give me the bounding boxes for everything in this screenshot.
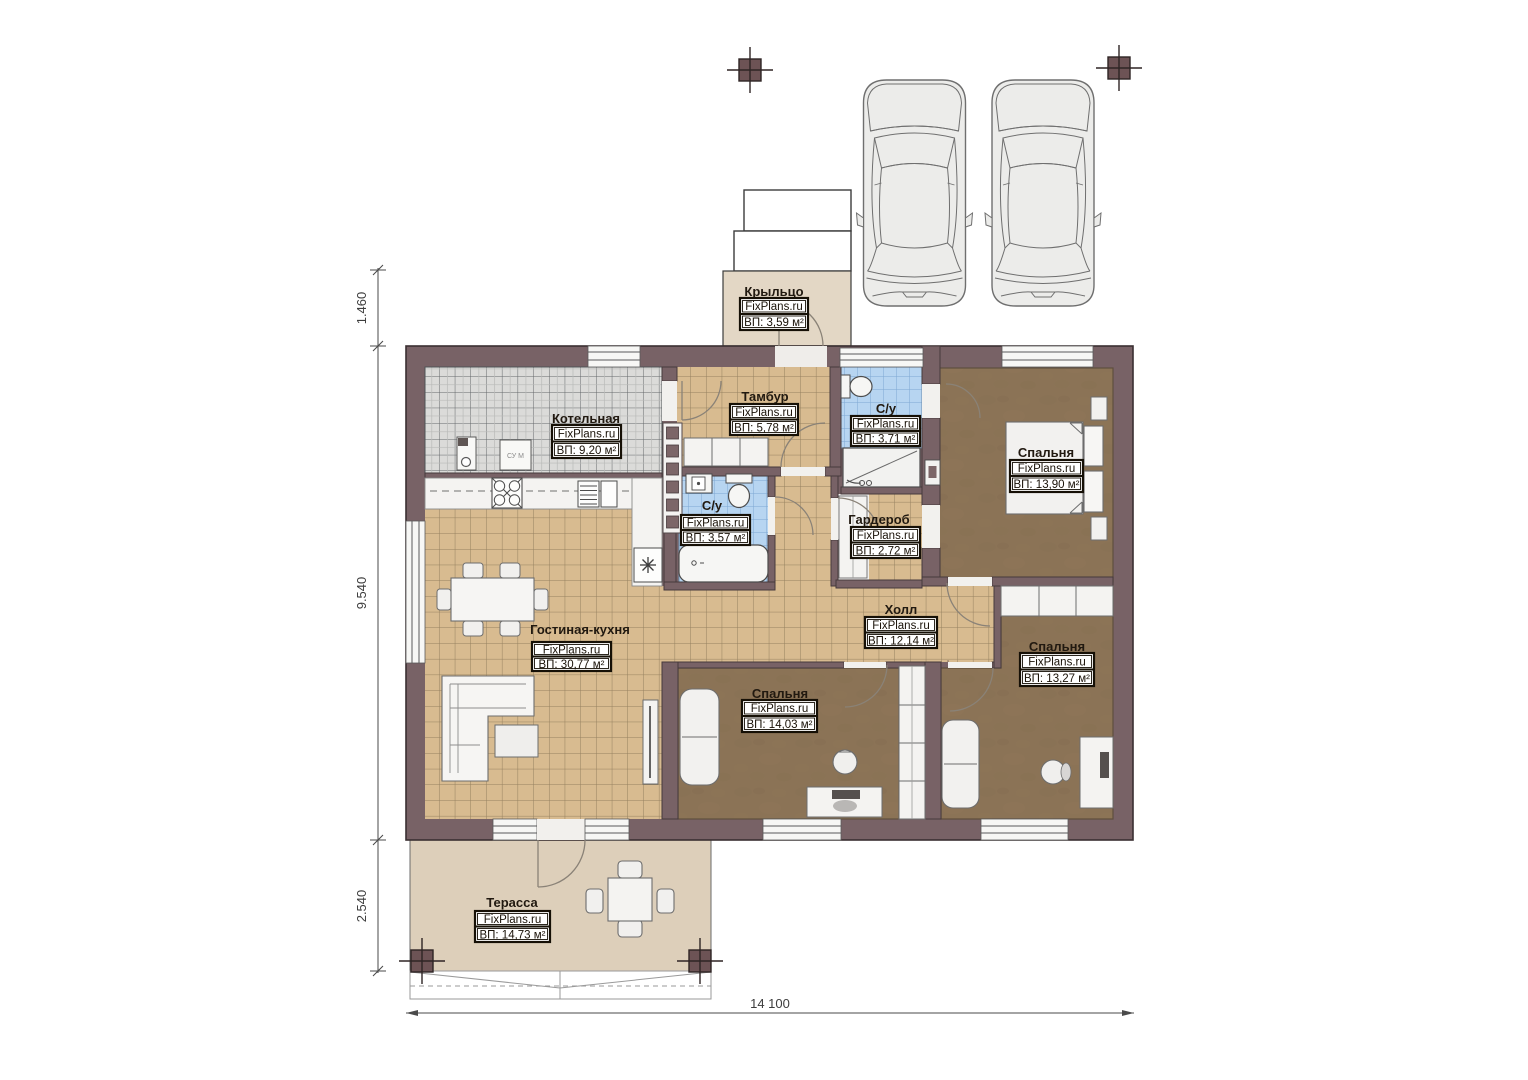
svg-text:14 100: 14 100 [750,996,790,1011]
svg-text:Гостиная-кухня: Гостиная-кухня [530,622,630,637]
svg-text:ВП: 12,14 м²: ВП: 12,14 м² [868,635,934,647]
svg-text:ВП: 2,72 м²: ВП: 2,72 м² [856,545,916,557]
svg-text:ВП: 14,73 м²: ВП: 14,73 м² [479,929,545,941]
svg-text:FixPlans.ru: FixPlans.ru [872,620,930,632]
svg-text:ВП: 3,71 м²: ВП: 3,71 м² [856,434,916,446]
svg-text:Терасса: Терасса [486,895,538,910]
svg-text:1.460: 1.460 [354,292,369,325]
svg-text:FixPlans.ru: FixPlans.ru [745,301,803,313]
svg-text:FixPlans.ru: FixPlans.ru [735,407,793,419]
svg-text:ВП: 13,27 м²: ВП: 13,27 м² [1024,673,1090,685]
svg-text:FixPlans.ru: FixPlans.ru [1018,463,1076,475]
svg-text:FixPlans.ru: FixPlans.ru [687,518,745,530]
svg-text:Холл: Холл [885,602,918,617]
svg-text:Крыльцо: Крыльцо [744,284,803,299]
svg-text:ВП: 3,57 м²: ВП: 3,57 м² [686,533,746,545]
svg-text:Спальня: Спальня [1018,445,1074,460]
svg-text:9.540: 9.540 [354,577,369,610]
svg-text:FixPlans.ru: FixPlans.ru [857,419,915,431]
svg-text:Спальня: Спальня [1029,639,1085,654]
svg-text:FixPlans.ru: FixPlans.ru [484,914,542,926]
svg-text:ВП: 5,78 м²: ВП: 5,78 м² [734,422,794,434]
svg-text:Спальня: Спальня [752,686,808,701]
svg-text:Тамбур: Тамбур [741,389,788,404]
svg-text:FixPlans.ru: FixPlans.ru [857,530,915,542]
svg-text:FixPlans.ru: FixPlans.ru [751,703,809,715]
svg-text:FixPlans.ru: FixPlans.ru [543,644,601,656]
svg-text:2.540: 2.540 [354,890,369,923]
svg-text:ВП: 3,59 м²: ВП: 3,59 м² [744,317,804,329]
svg-text:Котельная: Котельная [552,411,620,426]
svg-text:ВП: 14,03 м²: ВП: 14,03 м² [746,719,812,731]
svg-text:FixPlans.ru: FixPlans.ru [1028,656,1086,668]
svg-text:ВП: 9,20 м²: ВП: 9,20 м² [557,445,617,457]
svg-text:СУ М: СУ М [507,453,524,460]
svg-text:Гардероб: Гардероб [848,512,909,527]
svg-text:ВП: 30,77 м²: ВП: 30,77 м² [538,659,604,671]
svg-text:FixPlans.ru: FixPlans.ru [558,428,616,440]
svg-text:С/у: С/у [702,498,723,513]
svg-text:ВП: 13,90 м²: ВП: 13,90 м² [1013,479,1079,491]
svg-text:С/у: С/у [876,401,897,416]
